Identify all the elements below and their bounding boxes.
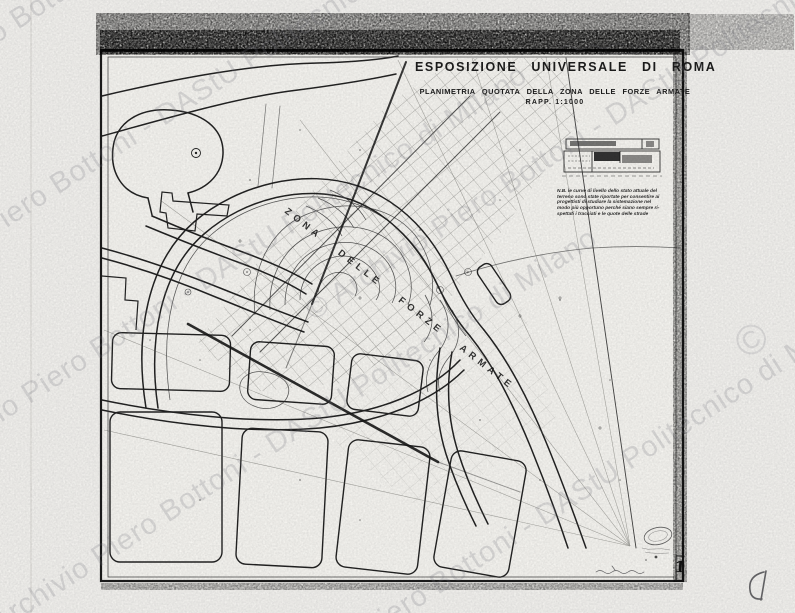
map-subtitle: PLANIMETRIA QUOTATA DELLA ZONA DELLE FOR… <box>415 87 695 96</box>
map-title: ESPOSIZIONE UNIVERSALE DI ROMA <box>415 60 695 74</box>
nb-note: N.B. le curve di livello dello stato att… <box>557 189 691 218</box>
nb-note-line: spettati i tracciati e le quote delle st… <box>557 212 691 218</box>
scanned-page: ESPOSIZIONE UNIVERSALE DI ROMA PLANIMETR… <box>0 0 795 613</box>
sheet-number: 1 <box>673 558 686 577</box>
scale-label: RAPP. 1:1000 <box>415 99 695 106</box>
title-block: ESPOSIZIONE UNIVERSALE DI ROMA PLANIMETR… <box>415 60 695 106</box>
